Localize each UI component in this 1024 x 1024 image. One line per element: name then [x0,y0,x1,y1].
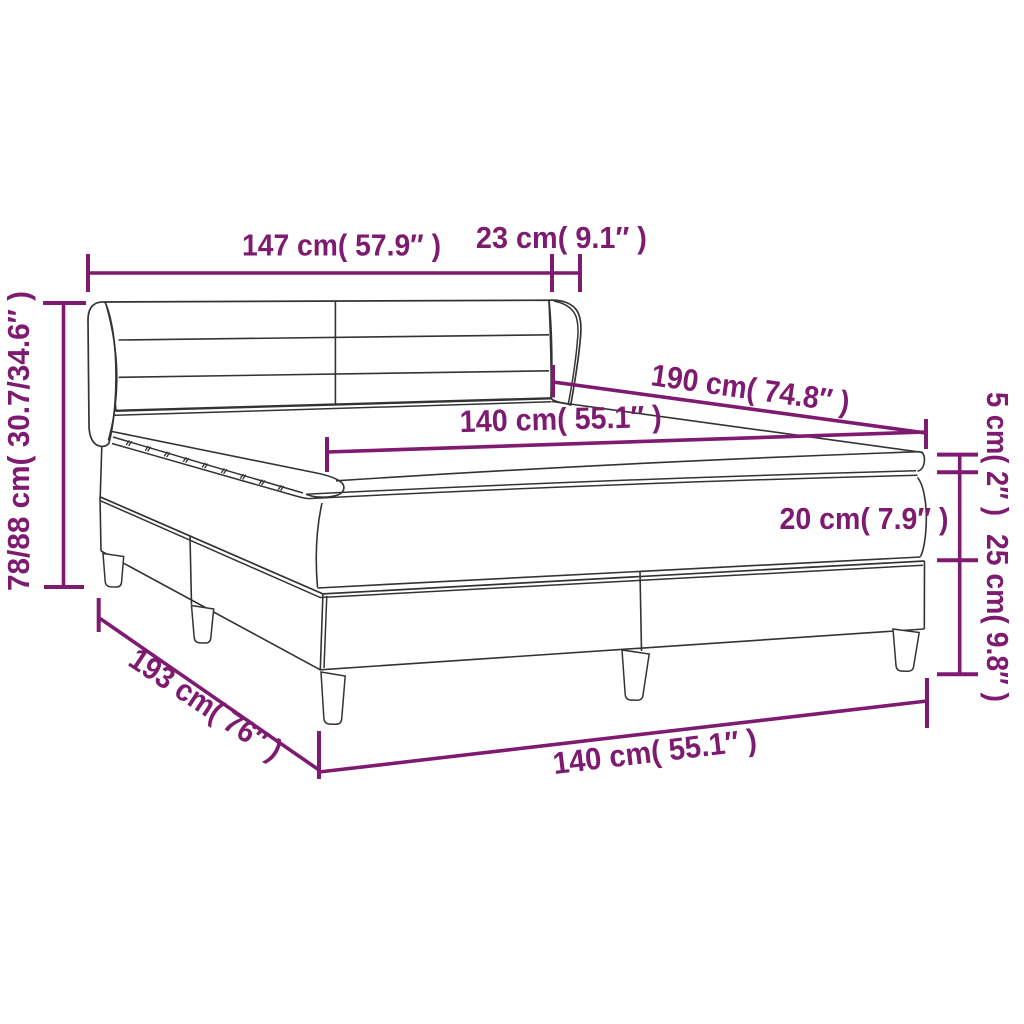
svg-text:20 cm( 7.9″ ): 20 cm( 7.9″ ) [780,501,949,536]
svg-text:78/88 cm( 30.7/34.6″ ): 78/88 cm( 30.7/34.6″ ) [1,291,36,591]
svg-text:193 cm( 76″ ): 193 cm( 76″ ) [123,641,289,767]
svg-text:23 cm( 9.1″ ): 23 cm( 9.1″ ) [476,220,647,255]
svg-text:25 cm( 9.8″ ): 25 cm( 9.8″ ) [980,534,1015,702]
svg-text:140 cm( 55.1″ ): 140 cm( 55.1″ ) [551,722,759,781]
svg-text:140 cm( 55.1″ ): 140 cm( 55.1″ ) [459,399,662,439]
svg-text:5 cm( 2″ ): 5 cm( 2″ ) [980,392,1015,516]
svg-text:147 cm( 57.9″ ): 147 cm( 57.9″ ) [242,228,441,263]
